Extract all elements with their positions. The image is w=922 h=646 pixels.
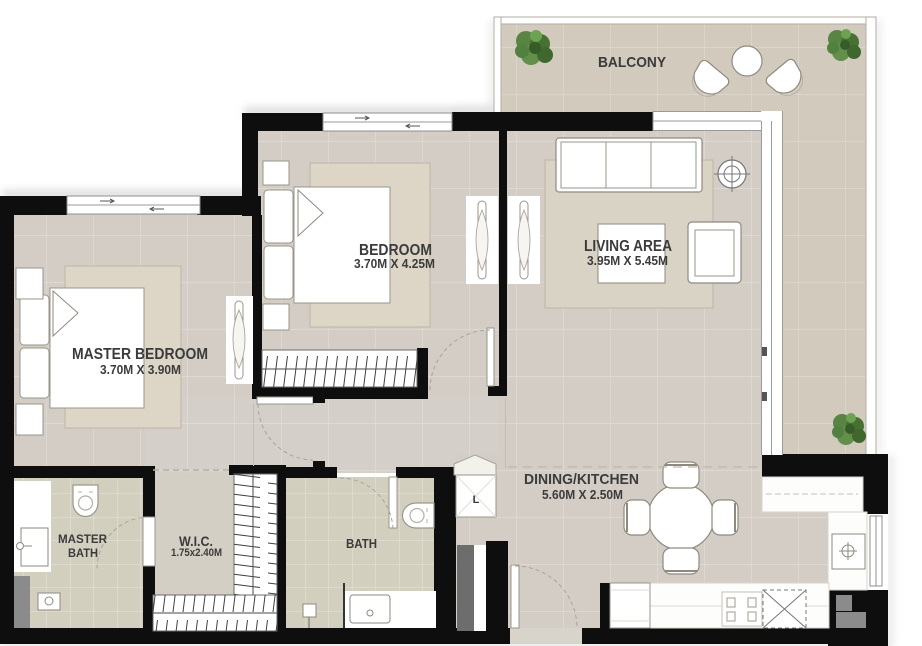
- svg-text:MASTER: MASTER: [58, 532, 107, 546]
- svg-text:L: L: [473, 494, 480, 506]
- svg-text:BATH: BATH: [68, 546, 98, 560]
- svg-text:5.60M X 2.50M: 5.60M X 2.50M: [542, 487, 623, 502]
- svg-text:3.70M X 4.25M: 3.70M X 4.25M: [354, 256, 435, 271]
- svg-text:MASTER BEDROOM: MASTER BEDROOM: [72, 346, 208, 363]
- svg-text:BALCONY: BALCONY: [598, 54, 666, 71]
- svg-text:1.75x2.40M: 1.75x2.40M: [171, 547, 222, 559]
- svg-text:BATH: BATH: [346, 537, 377, 551]
- svg-text:3.95M X 5.45M: 3.95M X 5.45M: [587, 253, 668, 268]
- svg-text:DINING/KITCHEN: DINING/KITCHEN: [524, 471, 639, 488]
- svg-text:3.70M X 3.90M: 3.70M X 3.90M: [100, 362, 181, 377]
